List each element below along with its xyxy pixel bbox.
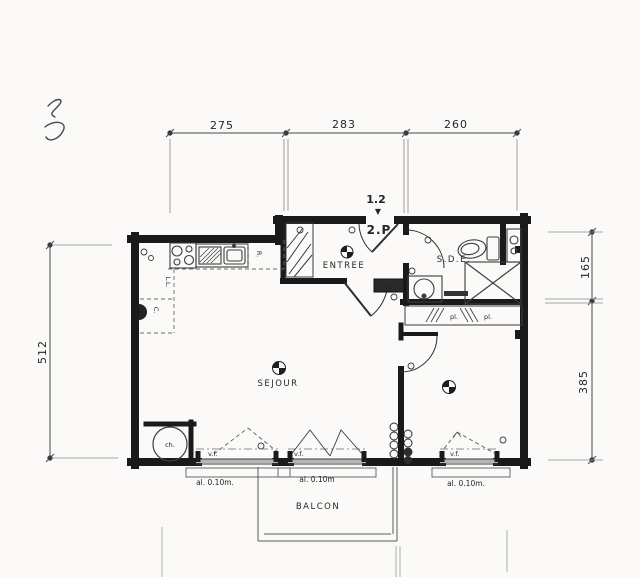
floor-plan-svg: 275 283 260 512 165 385 1.2 ▼ 2.P xyxy=(0,0,640,577)
ceiling-light-icon xyxy=(443,381,456,394)
window-right xyxy=(440,432,498,464)
kitchen-outlet-icon xyxy=(141,249,154,261)
wall-sink-icon xyxy=(139,304,147,320)
window-left-label: v.f. xyxy=(208,450,217,458)
room-label-entree: ENTREE xyxy=(323,261,366,271)
kitchen-stove xyxy=(170,243,196,268)
room-label-sde: S.D.E. xyxy=(437,255,471,265)
towel-bar xyxy=(444,291,468,296)
sill-height-label-3: al. 0.10m. xyxy=(447,479,485,488)
left-dimension xyxy=(46,241,118,462)
electrical-panel: edf xyxy=(374,279,404,292)
dim-label-right-1: 165 xyxy=(579,255,592,279)
down-arrow-icon: ▼ xyxy=(375,207,382,216)
sill-height-label-2: al. 0.10m xyxy=(299,475,334,484)
entree-closet xyxy=(286,223,313,277)
water-heater: ch. xyxy=(153,427,187,461)
closet-label-1: pl. xyxy=(450,313,458,321)
window-right-label: v.f. xyxy=(450,450,459,458)
cupboard-label: C. xyxy=(152,307,160,314)
closet-label-2: pl. xyxy=(484,313,492,321)
unit-marker-line1: 1.2 xyxy=(366,193,386,206)
room-label-sejour: SEJOUR xyxy=(257,379,298,389)
top-extension-lines xyxy=(170,139,517,213)
radiator-bedroom xyxy=(404,430,412,464)
ceiling-light-icon xyxy=(273,362,286,375)
top-dimension xyxy=(166,129,521,213)
electrical-panel-label: edf xyxy=(383,283,396,291)
unit-marker: 1.2 ▼ 2.P xyxy=(366,193,391,237)
window-center-label: v.f. xyxy=(294,450,303,458)
window-left xyxy=(196,428,280,464)
bedroom-door xyxy=(401,334,438,372)
outer-sills xyxy=(186,468,510,477)
dim-label-top-1: 275 xyxy=(210,119,234,132)
washing-machine-label: L.L. xyxy=(164,276,172,287)
window-center-french xyxy=(288,430,366,464)
dim-label-left: 512 xyxy=(36,340,49,364)
handwritten-mark xyxy=(45,100,64,140)
radiator-sejour xyxy=(390,423,398,458)
dim-label-right-2: 385 xyxy=(577,370,590,394)
washbasin-alcove xyxy=(408,276,442,302)
ceiling-light-icon xyxy=(341,246,353,258)
floor-plan-page: 275 283 260 512 165 385 1.2 ▼ 2.P xyxy=(0,0,640,577)
dim-label-top-3: 260 xyxy=(444,118,468,131)
kitchen-sink xyxy=(196,243,248,267)
room-label-balcon: BALCON xyxy=(296,502,340,512)
wardrobe-strip xyxy=(405,306,522,325)
water-heater-label: ch. xyxy=(165,441,175,449)
shower xyxy=(465,262,521,304)
refrigerator-label: R. xyxy=(255,251,263,257)
dim-label-top-2: 283 xyxy=(332,118,356,131)
washbasin-unit xyxy=(507,229,521,262)
right-dimension xyxy=(545,228,603,464)
sill-height-label-1: al. 0.10m. xyxy=(196,478,234,487)
